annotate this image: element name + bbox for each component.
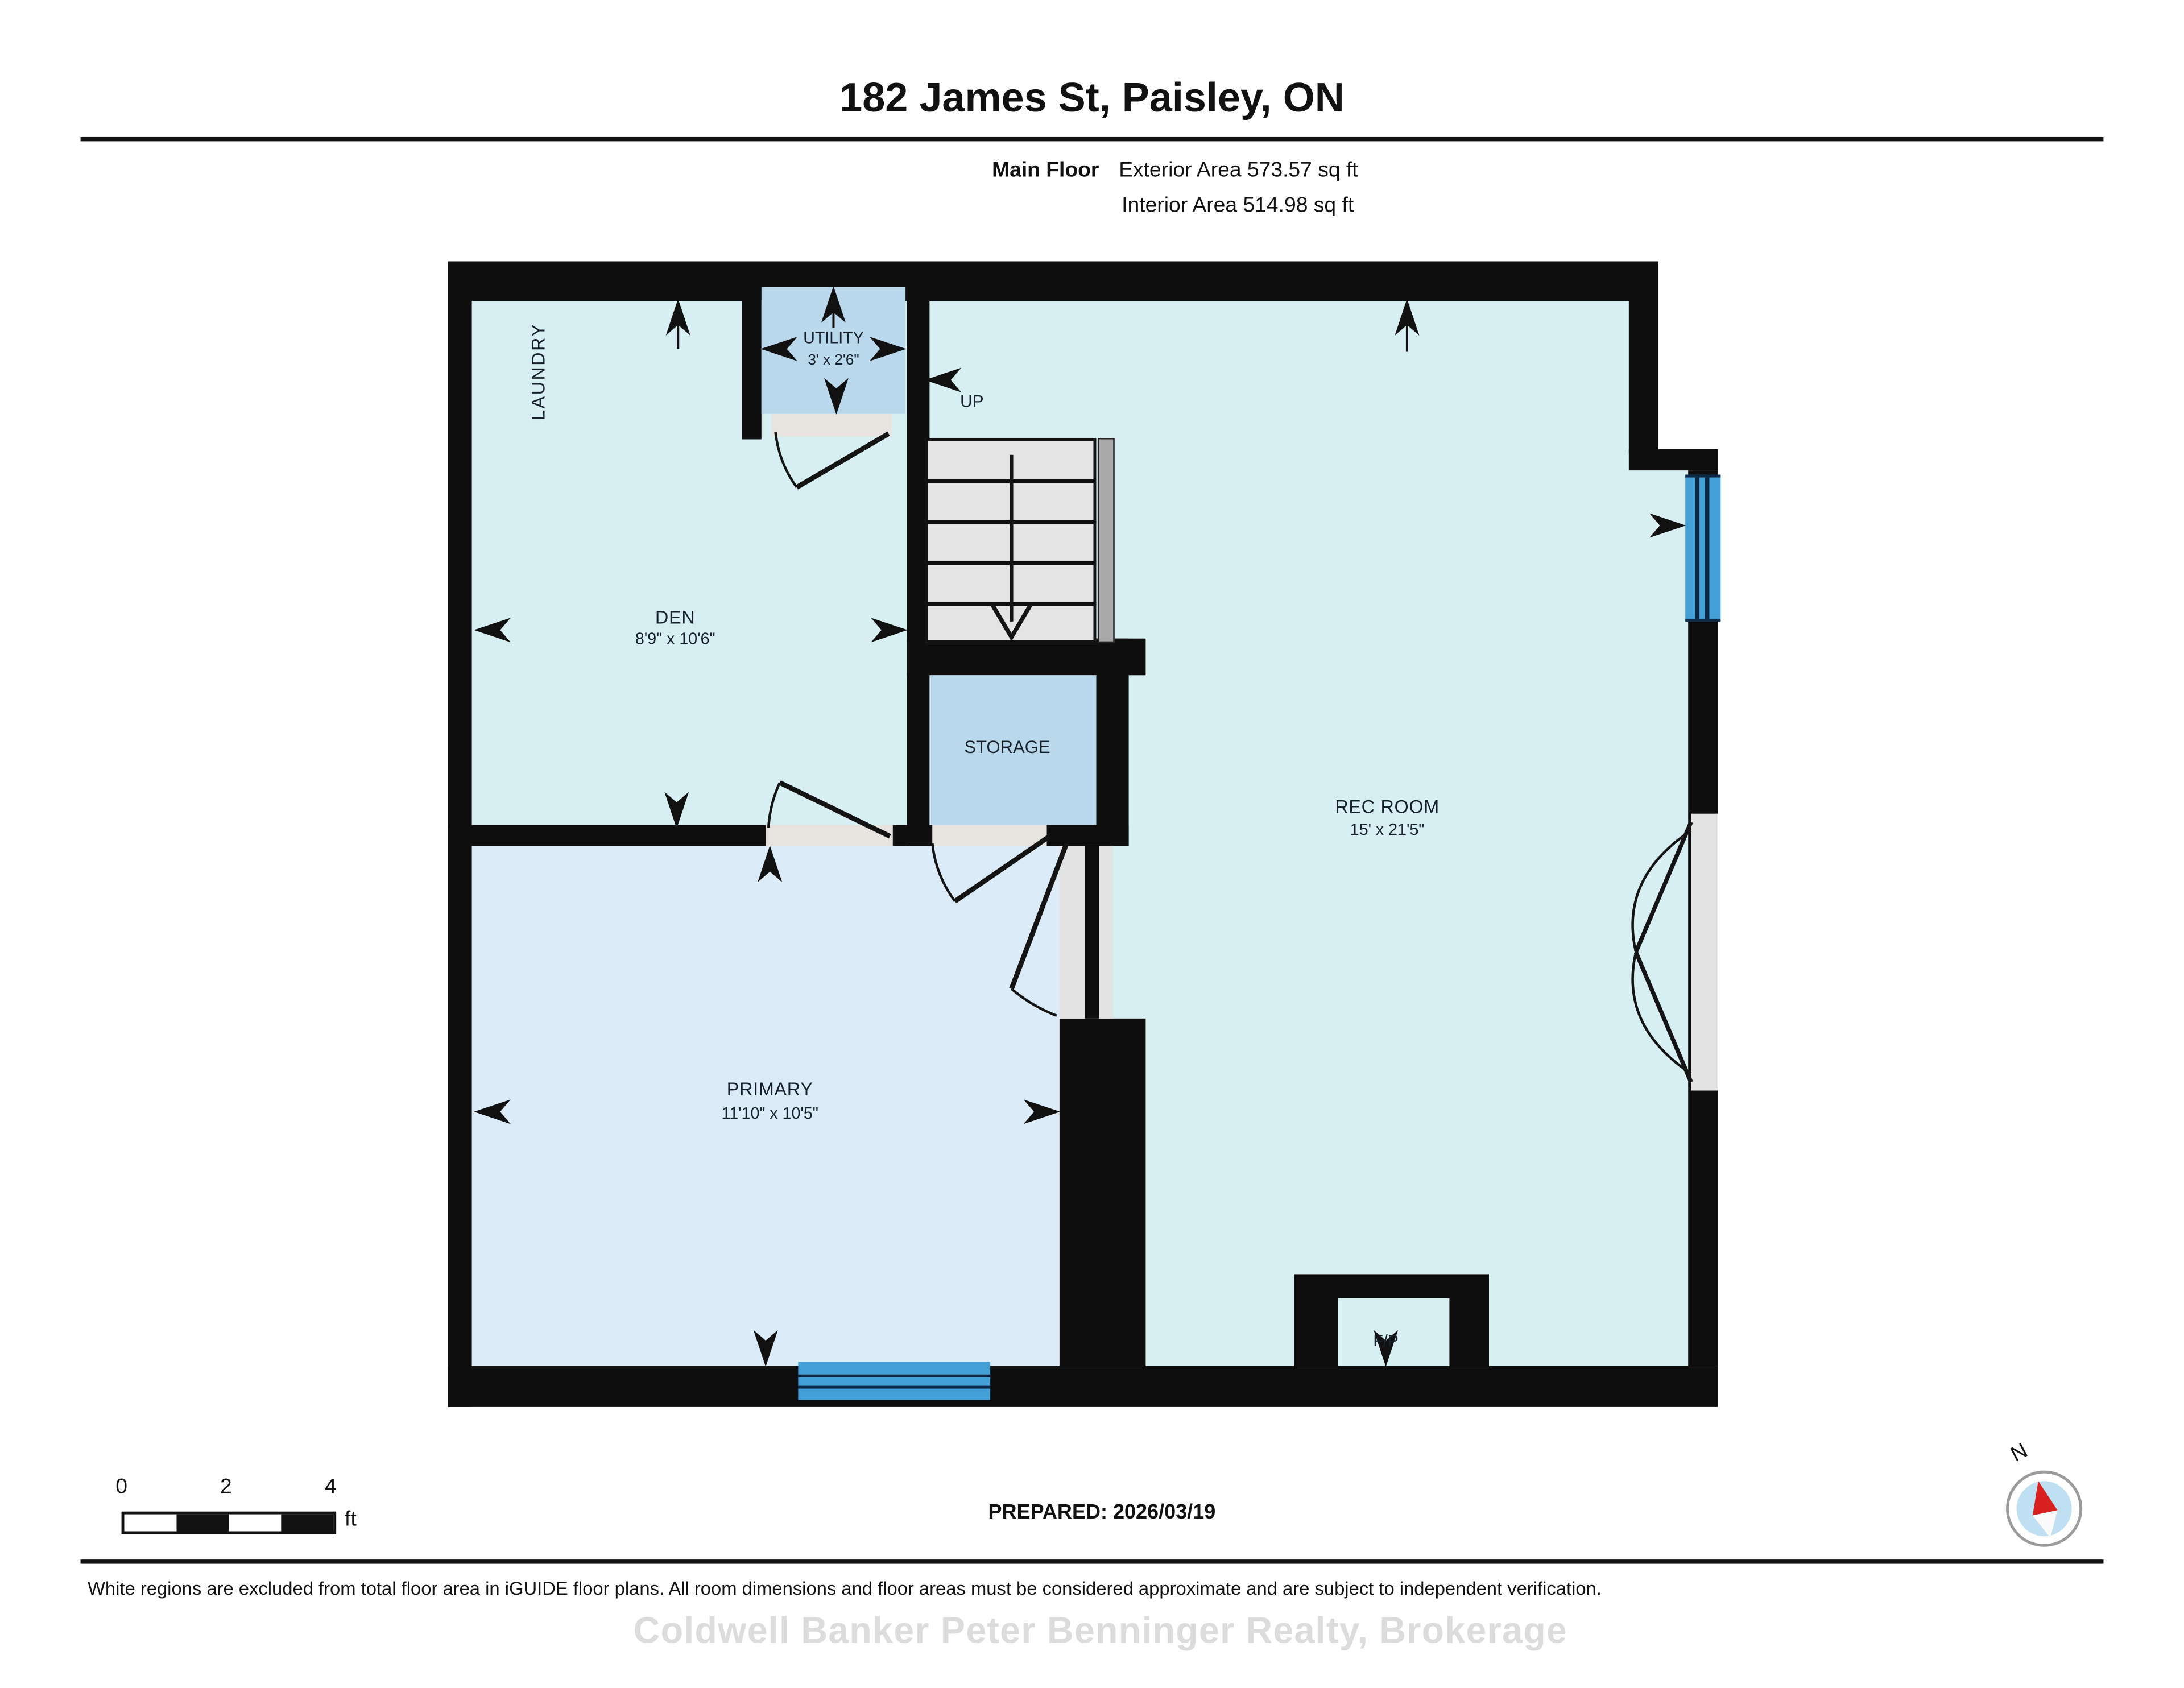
primary-label: PRIMARY (727, 1078, 813, 1099)
arrow-utility-south-icon (826, 382, 846, 411)
footer-disclaimer: White regions are excluded from total fl… (88, 1578, 1602, 1599)
arrow-primary-south-icon (756, 1334, 776, 1363)
arrow-den-west-icon (478, 620, 507, 640)
plan-symbols (0, 0, 2184, 1688)
arrow-den-east-icon (874, 620, 904, 640)
scale-segment (176, 1515, 229, 1532)
stairs-up-label: UP (960, 391, 983, 411)
compass-icon (2008, 1472, 2081, 1545)
scale-bar (122, 1512, 337, 1534)
stair-down-arrow-icon (993, 455, 1030, 637)
den-label: DEN (655, 607, 695, 628)
arrow-rec-east-icon (1653, 516, 1682, 536)
scale-segment (229, 1515, 281, 1532)
arrow-utility-east-icon (873, 339, 903, 359)
arrow-hall-west-icon (928, 370, 958, 390)
rec-room-dims: 15' x 21'5" (1350, 822, 1425, 839)
scale-tick-0: 0 (115, 1475, 127, 1499)
dimension-arrows (478, 289, 1683, 1363)
door-rec-entry (1011, 843, 1066, 1016)
scale-segment (281, 1515, 333, 1532)
arrow-den-north-icon (668, 303, 688, 349)
primary-dims: 11'10" x 10'5" (721, 1106, 818, 1123)
storage-label: STORAGE (964, 738, 1050, 758)
arrow-primary-east-icon (1027, 1102, 1057, 1122)
arrow-primary-north-icon (760, 849, 780, 879)
den-dims: 8'9" x 10'6" (635, 631, 715, 648)
floorplan-stage: 182 James St, Paisley, ON Main Floor Ext… (0, 0, 2184, 1688)
door-utility (776, 432, 889, 487)
door-storage (932, 836, 1049, 901)
floorplan-page: 182 James St, Paisley, ON Main Floor Ext… (0, 0, 2184, 1688)
fireplace-label: F/P (1373, 1334, 1398, 1351)
footer-divider (81, 1559, 2104, 1563)
arrow-utility-north-icon (824, 289, 843, 328)
arrow-rec-north-icon (1397, 303, 1417, 352)
scale-tick-2: 2 (220, 1475, 232, 1499)
door-den (768, 783, 890, 836)
arrow-primary-west-icon (478, 1102, 507, 1122)
scale-segment (125, 1515, 177, 1532)
brokerage-watermark: Coldwell Banker Peter Benninger Realty, … (0, 1609, 2184, 1653)
prepared-date: PREPARED: 2026/03/19 (904, 1501, 1300, 1524)
arrow-utility-west-icon (764, 339, 794, 359)
laundry-label: LAUNDRY (528, 323, 549, 420)
scale-unit: ft (345, 1507, 357, 1531)
utility-label: UTILITY (803, 330, 863, 347)
scale-tick-4: 4 (325, 1475, 337, 1499)
rec-room-label: REC ROOM (1335, 796, 1440, 817)
arrow-den-south-icon (667, 795, 686, 825)
utility-dims: 3' x 2'6" (808, 351, 859, 369)
french-doors-icon (1633, 822, 1691, 1082)
